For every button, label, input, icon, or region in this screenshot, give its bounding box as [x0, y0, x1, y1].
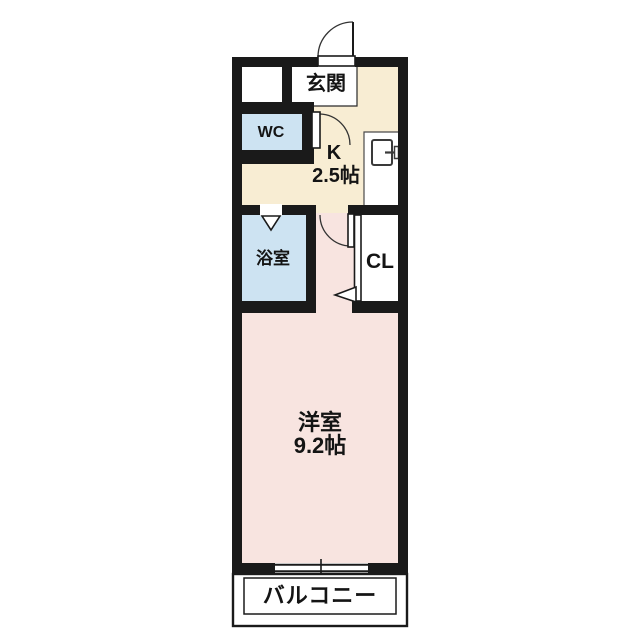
wc-label: WC — [258, 124, 285, 141]
wall-bottom-right — [368, 563, 408, 573]
wall-below-wc — [232, 150, 314, 164]
floor-plan: 玄関 WC K 2.5帖 浴室 CL 洋室 9.2帖 バルコニー — [0, 0, 640, 640]
wall-kitchen-bottom-right — [348, 205, 408, 215]
closet-label: CL — [366, 250, 394, 273]
kitchen-label: K — [327, 142, 342, 164]
wall-right — [398, 57, 408, 573]
storage-nook-floor — [242, 67, 282, 102]
western-room-label: 洋室 — [298, 410, 342, 435]
bathroom-label: 浴室 — [256, 248, 290, 268]
wall-bottom-left — [232, 563, 275, 573]
kitchen-size-label: 2.5帖 — [312, 164, 360, 187]
genkan-label: 玄関 — [306, 71, 346, 95]
floor-plan-drawing: 玄関 WC K 2.5帖 浴室 CL 洋室 9.2帖 バルコニー — [0, 0, 640, 640]
wall-above-wc — [232, 102, 314, 114]
wall-bathroom-right — [306, 215, 316, 313]
balcony-label: バルコニー — [263, 583, 378, 608]
wall-bathroom-bottom — [232, 301, 316, 313]
entrance-door-icon — [318, 22, 355, 66]
western-room-size-label: 9.2帖 — [294, 433, 347, 458]
wall-top-left — [232, 57, 318, 67]
wall-left — [232, 57, 242, 573]
wall-storage-right — [282, 57, 292, 114]
wall-closet-bottom — [352, 301, 408, 313]
